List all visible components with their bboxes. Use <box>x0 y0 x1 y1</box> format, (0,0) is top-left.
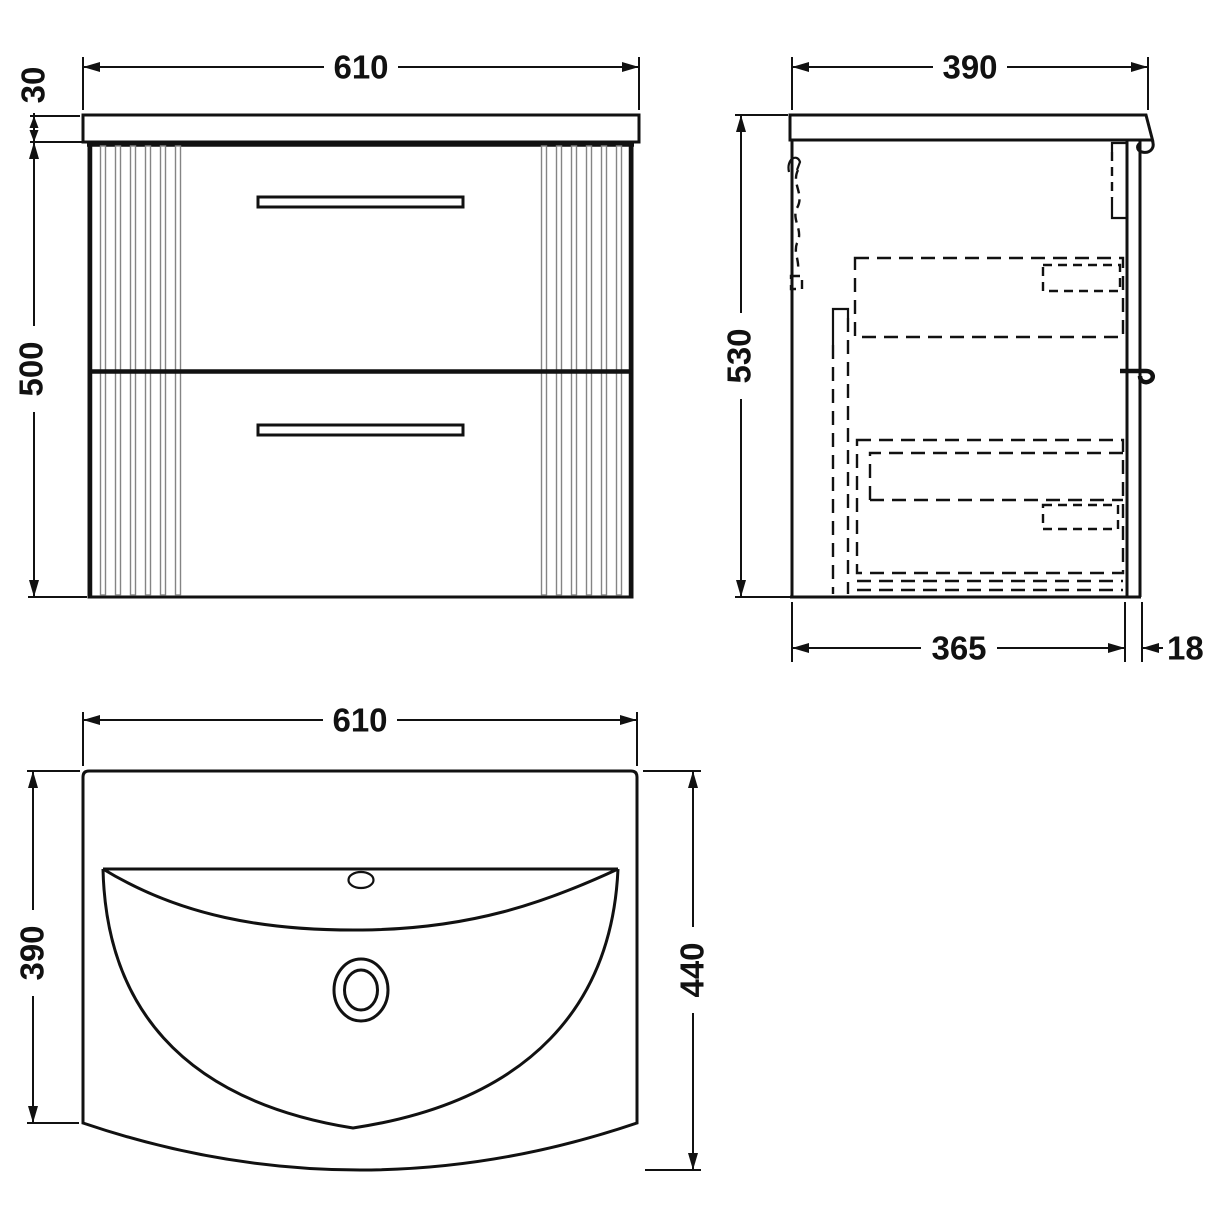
front-countertop <box>83 115 639 142</box>
side-countertop <box>790 115 1153 140</box>
dimension-front-height: 500 <box>12 142 87 597</box>
upper-drawer-box <box>855 258 1123 337</box>
drawing-sheet: 610 30 500 <box>0 0 1224 1224</box>
lower-drawer-rail <box>1043 505 1118 529</box>
dim-label-plan-overall-depth: 440 <box>674 942 711 997</box>
basin-bowl-outline <box>103 869 618 1128</box>
dimension-plan-overall-depth: 440 <box>643 771 712 1170</box>
wall-hook <box>1120 371 1153 382</box>
drain-outer <box>334 959 388 1021</box>
dimension-side-depth: 390 <box>792 48 1148 110</box>
dim-label-plan-depth: 390 <box>14 925 51 980</box>
dim-label-plan-width: 610 <box>332 702 387 739</box>
lower-drawer-box <box>857 440 1123 573</box>
dim-label-side-depth: 390 <box>942 49 997 86</box>
dim-label-front-width: 610 <box>333 49 388 86</box>
wall-bracket-top <box>1112 143 1126 218</box>
dimension-side-internal: 365 18 <box>792 602 1204 667</box>
tap-hole <box>349 872 374 888</box>
technical-drawing: 610 30 500 <box>0 0 1224 1224</box>
hidden-drawer-boxes <box>833 258 1123 594</box>
dim-label-back-panel: 18 <box>1167 630 1204 667</box>
plan-view: 610 390 440 <box>14 701 713 1170</box>
basin-wave-curve <box>103 869 618 930</box>
side-view: 390 530 365 18 <box>721 48 1204 667</box>
dimension-counter-thickness: 30 <box>15 57 87 160</box>
dim-label-side-height: 530 <box>721 328 758 383</box>
dimension-side-height: 530 <box>721 115 791 597</box>
dim-label-internal-depth: 365 <box>931 630 986 667</box>
drain-inner <box>345 970 378 1010</box>
dim-label-counter-thickness: 30 <box>15 67 52 104</box>
dim-label-front-height: 500 <box>13 341 50 396</box>
upper-drawer-rail <box>1043 265 1120 291</box>
dimension-plan-width: 610 <box>83 701 637 766</box>
lower-drawer-inner <box>870 453 1123 500</box>
dimension-plan-depth: 390 <box>14 771 81 1123</box>
lower-drawer-handle <box>258 425 463 435</box>
upper-drawer-handle <box>258 197 463 207</box>
dimension-front-width: 610 <box>83 48 639 110</box>
front-view: 610 30 500 <box>12 48 639 597</box>
